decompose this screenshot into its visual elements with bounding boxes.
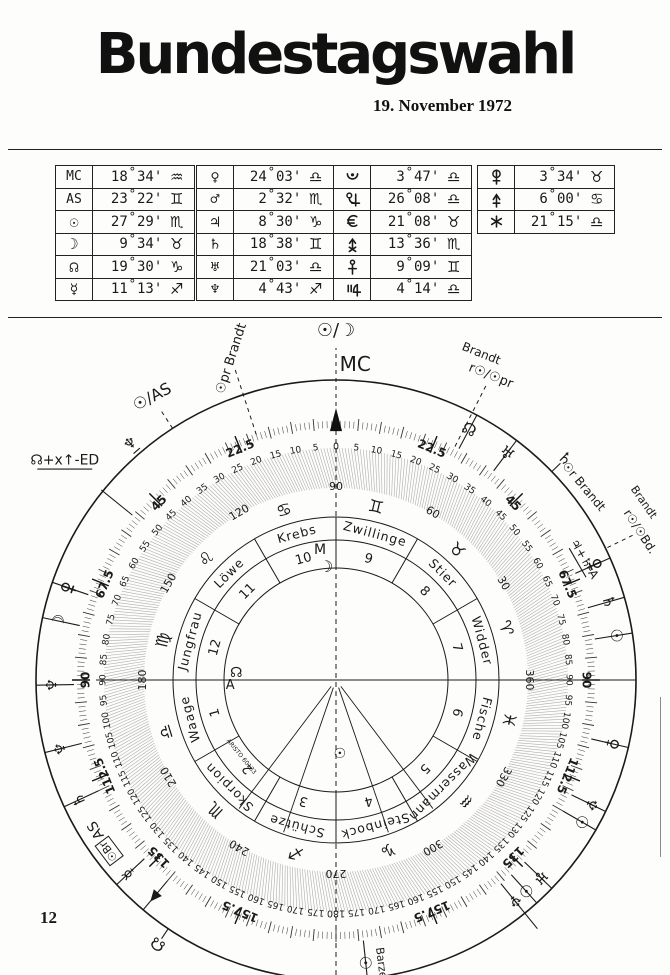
sagittarius-icon: ♐ [287,841,306,864]
house-number: 8 [416,583,432,599]
sun-icon: ☉ [358,952,374,972]
house-number: 9 [362,551,374,568]
scale-number: 15 [269,449,283,462]
scale-tick [477,465,481,471]
scale-tick [166,485,171,490]
admetos-icon [61,582,77,594]
disc-hatch [399,458,402,499]
disc-hatch [495,788,534,802]
scale-tick [358,419,359,431]
disc-hatch [492,792,530,807]
scale-tick [553,549,563,555]
disc-hatch [131,762,163,788]
scale-tick [582,723,594,725]
scale-number: 45 [493,508,508,523]
scale-tick [582,732,589,733]
scale-tick [80,719,87,720]
scale-tick [367,930,368,937]
disc-hatch [473,815,509,835]
scale-tick [371,930,372,937]
scale-number: 155 [228,883,248,899]
disc-hatch [408,461,413,502]
disc-hatch [446,837,477,864]
disc-hatch [450,835,482,861]
scale-number: 135 [162,835,181,854]
scale-tick [121,535,127,539]
disc-hatch [372,451,374,492]
scale-tick [466,896,470,902]
disc-hatch [108,636,149,637]
scale-number: 95 [562,694,573,706]
scale-tick [461,897,467,907]
cancer-icon: ♋ [274,499,294,523]
disc-hatch [261,859,266,900]
disc-hatch [489,532,514,564]
disc-hatch [527,650,566,664]
scale-tick [541,823,551,830]
disc-hatch [357,449,362,490]
scale-tick [109,805,119,811]
scale-tick [260,921,262,928]
scale-tick [582,626,589,627]
moon-icon: ☽ [47,612,69,630]
ring360-number: 120 [227,502,252,524]
disc-hatch [523,722,564,723]
disc-hatch [496,544,523,575]
scale-tick [537,524,543,528]
disc-hatch [256,857,262,898]
scale-tick [561,562,567,565]
scale-tick [85,617,92,619]
scale-tick [191,465,195,471]
disc-hatch [107,639,148,641]
scale-tick [526,510,531,515]
scale-tick [535,521,541,525]
scale-tick [105,562,111,565]
disc-hatch [506,564,536,592]
scale-tick [205,453,211,463]
scale-tick [495,876,499,881]
scale-tick [80,644,87,645]
saturn-icon: ♄ [67,790,90,811]
scale-tick [577,612,589,615]
disc-hatch [527,698,568,704]
disc-hatch [389,454,390,495]
scale-tick [505,488,510,493]
scale-tick [586,715,593,716]
virgo-icon: ♍ [152,631,175,650]
scale-tick [304,930,305,937]
scale-tick [282,926,283,933]
disc-hatch [292,867,293,908]
sign-name-gemini: Zwillinge [342,518,409,549]
scale-tick [88,754,95,756]
scale-tick [585,639,592,640]
scale-tick [313,929,314,941]
scale-tick [488,473,492,479]
scale-tick [371,424,372,431]
scale-tick [577,754,584,756]
disc-hatch [382,866,402,902]
venus-icon: ♀ [602,736,623,752]
disc-hatch [215,839,229,878]
scale-tick [559,798,565,801]
disc-hatch [160,529,196,548]
sun-icon: ☉ [570,811,594,833]
scale-tick [78,635,90,637]
scale-tick [484,470,488,476]
scale-number: 80 [101,633,113,646]
scale-tick [107,798,113,801]
disc-hatch [527,695,568,701]
scale-tick [532,839,537,843]
scale-tick [582,737,589,739]
scale-number: 120 [126,786,143,806]
scale-tick [265,922,267,929]
scale-tick [80,715,87,716]
scale-tick [454,903,457,909]
scale-tick [545,535,551,539]
scale-tick [309,422,310,429]
scale-tick [177,476,181,482]
scale-tick [586,644,593,645]
scale-tick [119,539,125,543]
disc-hatch [290,866,291,907]
disc-hatch [195,496,226,523]
scale-tick [135,512,144,520]
scale-tick [466,458,470,464]
disc-hatch [210,836,225,874]
scorpio-icon: ♏ [203,797,228,822]
annotation-tick [161,410,173,428]
scale-tick [84,737,91,739]
scale-tick [168,479,176,488]
scale-tick [585,719,592,720]
scale-tick [470,894,474,900]
disc-hatch [114,614,155,617]
scale-tick [203,896,207,902]
scale-tick [144,507,149,512]
disc-hatch [517,743,558,746]
disc-hatch [228,475,254,507]
neptune-icon: ♆ [49,739,71,758]
scale-tick [186,885,193,895]
scale-tick [582,622,589,624]
scale-tick [583,728,590,729]
scale-tick [585,657,597,658]
scale-tick [540,828,546,832]
disc-hatch [387,865,408,901]
scale-tick [405,431,407,438]
disc-hatch [312,871,318,912]
scale-tick [268,921,271,933]
disc-hatch [392,455,393,496]
scale-number: 10 [289,445,302,457]
scale-tick [214,903,217,909]
disc-hatch [516,588,549,612]
ring360-number: 330 [493,764,515,789]
disc-hatch [270,861,273,902]
disc-hatch [418,854,444,886]
sun-progressed-brandt: ☉pr Brandt [213,321,250,395]
scale-tick [479,885,486,895]
disc-hatch [442,840,473,867]
disc-hatch [527,647,566,661]
disc-hatch [369,450,372,491]
scale-tick [300,930,301,937]
disc-hatch [520,736,561,737]
scale-number: 75 [554,613,567,627]
scale-tick [550,543,556,547]
disc-hatch [200,492,231,519]
disc-hatch [119,597,160,603]
scale-tick [295,929,296,936]
sign-name-aries: Widder [469,615,496,667]
disc-hatch [318,449,330,488]
scale-number: 175 [347,906,365,917]
house-number: 12 [206,638,225,658]
scale-number: 175 [307,906,325,917]
scale-tick [282,427,283,434]
scale-tick [362,422,363,429]
scale-tick [88,604,95,606]
barzel-label: Barzel [373,947,390,975]
scale-number: 20 [408,455,422,468]
scale-tick [75,657,87,658]
scale-tick [461,453,467,463]
scale-tick [587,653,594,654]
brandt-radix-prog-2: r☉/☉pr [466,360,515,392]
scale-number: 55 [519,539,534,554]
scale-tick [393,926,395,933]
scale-tick [256,434,258,441]
scale-number: 5 [353,443,360,453]
house-number: 4 [362,792,374,809]
scale-tick [87,609,94,611]
node-icon: ☊ [146,933,168,957]
disc-hatch [524,716,565,718]
disc-hatch [495,541,522,572]
disc-hatch [315,871,321,912]
scale-tick [559,558,565,561]
scale-tick [479,465,486,475]
scale-number: 150 [442,873,462,890]
gemini-icon: ♊ [366,496,385,519]
scale-tick [405,922,407,929]
scale-tick [114,547,120,551]
scale-tick [552,547,558,551]
disc-hatch [452,833,484,858]
scale-number: 155 [424,883,444,899]
scale-number: 30 [445,471,460,486]
aristo-dial-chart: 0180551010151520202525303035354040454550… [0,0,670,975]
sign-name-libra: Waage [176,694,203,744]
disc-hatch [300,869,303,910]
scale-tick [501,485,506,490]
scale-tick [109,549,119,555]
scale-tick [199,894,203,900]
scale-number: 125 [517,803,535,823]
scale-tick [501,870,506,875]
disc-hatch [244,467,268,500]
scale-number: 115 [117,768,133,788]
disc-hatch [267,458,287,494]
scale-tick [585,702,597,703]
disc-hatch [351,448,357,489]
disc-hatch [522,611,558,631]
scale-tick [141,510,146,515]
disc-hatch [105,654,146,659]
disc-hatch [518,740,559,743]
scale-tick [556,802,562,805]
scale-tick [528,841,537,849]
scale-tick [495,479,499,484]
disc-hatch [106,699,145,713]
disc-hatch [413,463,419,504]
disc-hatch [154,792,180,824]
scale-tick [309,931,310,938]
disc-hatch [420,853,447,884]
disc-hatch [448,485,463,523]
scale-tick [79,648,86,649]
sun-icon: ☉ [606,627,627,644]
scale-tick [488,881,492,887]
scale-tick [484,884,488,890]
scale-tick [401,427,404,439]
ring360-number: 30 [494,574,512,593]
scale-tick [168,872,176,881]
scale-tick [109,802,115,805]
disc-hatch [514,752,555,757]
disc-hatch [310,870,315,911]
scale-tick [90,600,97,602]
disc-hatch [385,866,405,902]
scale-tick [393,428,395,435]
disc-hatch [112,620,153,622]
scale-number: 125 [137,803,155,823]
disc-hatch [303,450,317,489]
scale-tick [532,517,537,521]
scale-number: 145 [193,861,213,879]
disc-hatch [225,476,252,507]
disc-hatch [476,811,512,830]
scale-tick [79,711,86,712]
scale-tick [587,706,594,707]
scale-tick [458,453,461,459]
ring360-number: 150 [158,571,180,596]
scale-number: 165 [266,898,285,912]
scale-special-number: 90 [79,672,93,689]
libra-icon: ♎ [155,722,179,742]
scale-tick [384,426,385,433]
disc-hatch [106,644,147,647]
disc-hatch [381,452,382,493]
scale-number: 75 [105,613,118,627]
disc-hatch [404,860,428,893]
disc-hatch [474,813,510,833]
scale-tick [121,823,131,830]
scale-number: 70 [111,593,124,607]
aries-icon: ♈ [493,618,517,638]
disc-hatch [168,520,203,541]
disc-hatch [247,466,270,500]
scale-tick [129,832,135,836]
scale-tick [287,426,288,433]
scale-tick [547,817,553,821]
scale-tick [379,926,381,938]
scale-tick [82,631,89,632]
scale-tick [581,741,588,743]
disc-hatch [411,462,417,503]
sign-name-virgo: Jungfrau [174,610,204,673]
scale-tick [80,639,87,640]
scale-tick [491,476,495,482]
scale-number: 60 [127,556,142,571]
disc-hatch [492,536,518,568]
scale-tick [278,428,280,435]
scale-tick [214,451,217,457]
scale-tick [576,600,583,602]
scale-tick [173,479,177,484]
house-number: 1 [207,706,224,718]
disc-hatch [306,450,320,489]
disc-hatch [162,527,198,547]
disc-hatch [114,726,150,746]
disc-hatch [448,836,480,862]
neptune-icon: ♆ [42,678,61,693]
disc-hatch [107,641,148,643]
node-icon: ☊ [459,418,480,441]
scale-tick [184,884,188,890]
disc-hatch [115,731,151,752]
leo-icon: ♌ [194,547,219,572]
scale-tick [78,723,90,725]
scale-number: 80 [559,633,571,646]
disc-hatch [522,614,558,634]
scale-tick [291,926,293,938]
disc-hatch [179,815,200,850]
disc-hatch [197,494,228,521]
moon-at-mc-glyph: ☽ [319,557,333,576]
scale-tick [577,604,584,606]
scale-tick [578,609,585,611]
disc-hatch [491,534,517,566]
scale-tick [537,832,543,836]
disc-hatch [469,506,489,542]
scale-tick [121,821,127,825]
disc-hatch [406,460,411,501]
scale-tick [300,424,301,431]
scale-tick [550,814,556,818]
scale-tick [126,528,132,532]
disc-hatch [515,750,556,755]
disc-hatch [401,861,424,895]
disc-hatch [150,788,177,819]
scale-tick [586,711,593,712]
annotation-tick [607,535,632,547]
ring360-number: 240 [227,837,252,859]
scale-tick [375,929,376,936]
disc-hatch [164,525,200,545]
disc-hatch [355,871,369,910]
scale-tick [114,810,120,814]
mc-label: MC [340,352,371,376]
scale-number: 60 [530,556,545,571]
scale-number: 35 [195,482,210,497]
scale-tick [218,449,221,455]
scale-number: 130 [505,820,524,840]
scale-tick [497,479,505,488]
